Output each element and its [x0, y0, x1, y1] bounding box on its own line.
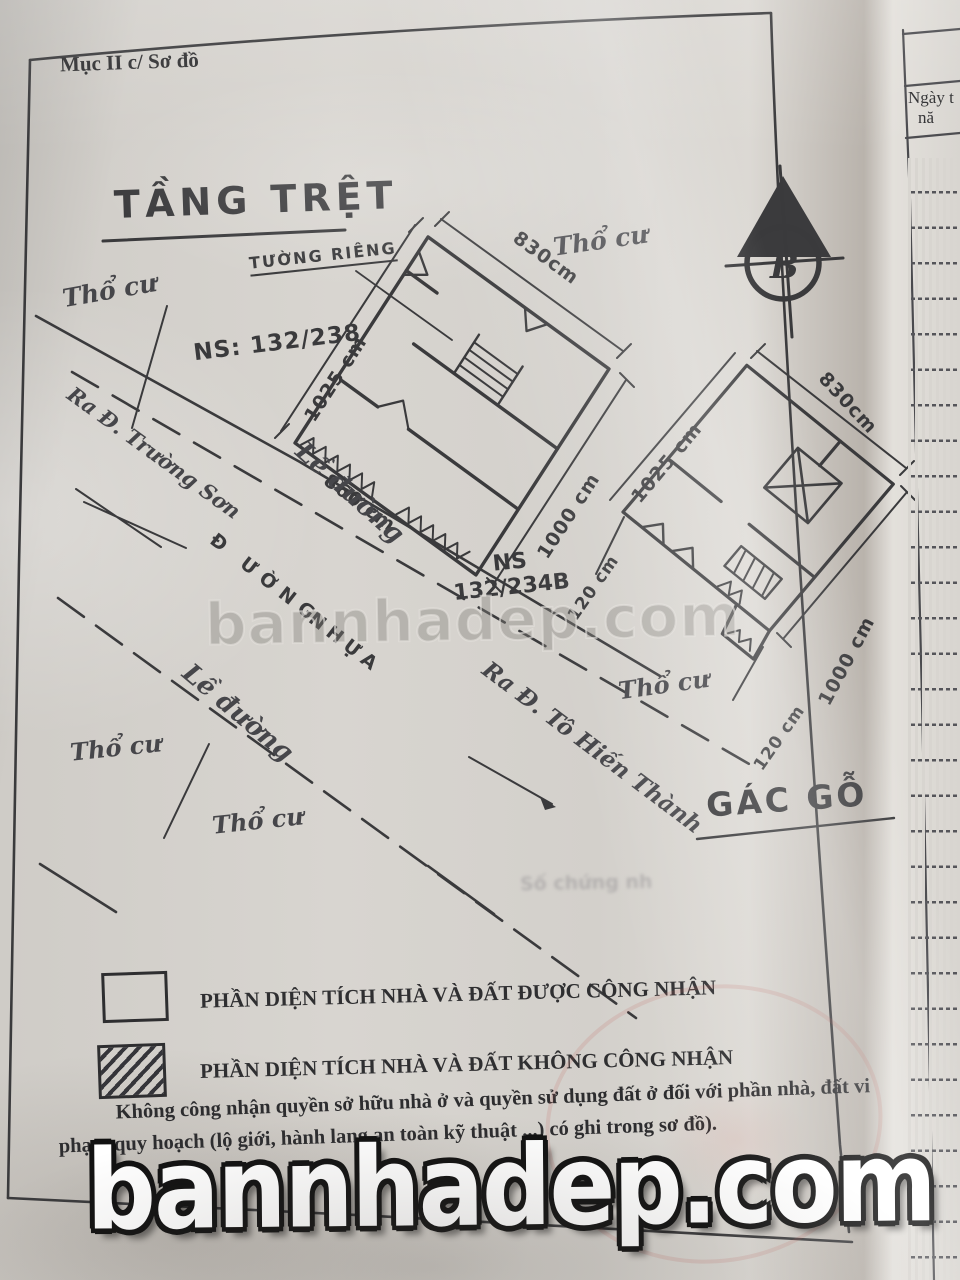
side-page-col-header-2: nă: [918, 108, 934, 128]
center-watermark: bannhadep.com: [204, 581, 741, 658]
road-lines: [36, 306, 756, 1018]
bleed-through-text: Số chứng nh: [520, 871, 653, 895]
north-letter: B: [769, 247, 799, 287]
section-header: Mục II c/ Sơ đồ: [60, 48, 200, 78]
legend-swatch-not-recognized: [97, 1043, 167, 1099]
legend-swatch-recognized: [101, 971, 169, 1023]
scanned-site-plan-page: B Mục II c/ Sơ đồ TẦNG TRỆT TƯỜNG RIÊNG …: [0, 0, 960, 1280]
side-page-col-header-1: Ngày t: [908, 88, 954, 108]
side-page-dotted-rows: [908, 158, 960, 1280]
bottom-watermark: bannhadep.com: [86, 1118, 935, 1255]
